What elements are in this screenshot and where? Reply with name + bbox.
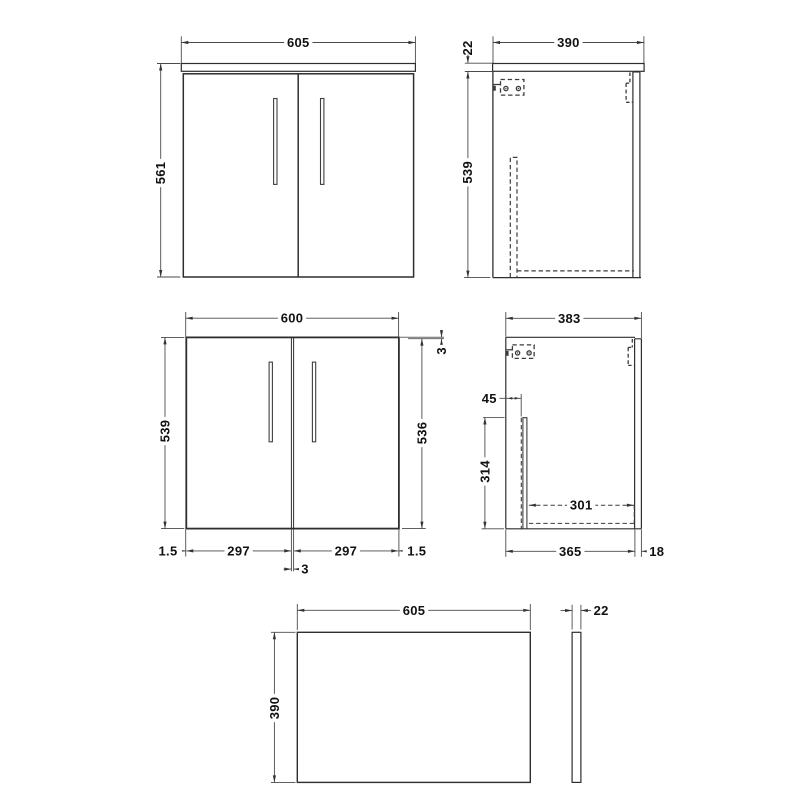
svg-text:390: 390 bbox=[557, 35, 580, 50]
svg-text:539: 539 bbox=[460, 161, 475, 184]
svg-text:3: 3 bbox=[301, 562, 309, 577]
svg-text:301: 301 bbox=[570, 498, 593, 513]
svg-text:365: 365 bbox=[559, 544, 582, 559]
svg-text:390: 390 bbox=[267, 697, 282, 720]
svg-text:383: 383 bbox=[558, 311, 581, 326]
svg-text:3: 3 bbox=[434, 347, 449, 355]
svg-text:45: 45 bbox=[482, 391, 497, 406]
svg-text:1.5: 1.5 bbox=[407, 543, 426, 558]
svg-text:297: 297 bbox=[227, 543, 250, 558]
svg-text:314: 314 bbox=[477, 460, 492, 483]
svg-text:539: 539 bbox=[158, 420, 173, 443]
svg-text:22: 22 bbox=[594, 603, 609, 618]
svg-text:18: 18 bbox=[649, 544, 664, 559]
svg-text:605: 605 bbox=[287, 35, 310, 50]
svg-text:600: 600 bbox=[281, 311, 304, 326]
svg-text:561: 561 bbox=[153, 162, 168, 185]
svg-text:22: 22 bbox=[460, 40, 475, 55]
svg-text:297: 297 bbox=[335, 543, 358, 558]
svg-text:1.5: 1.5 bbox=[159, 543, 178, 558]
svg-text:536: 536 bbox=[414, 422, 429, 445]
svg-text:605: 605 bbox=[403, 603, 426, 618]
